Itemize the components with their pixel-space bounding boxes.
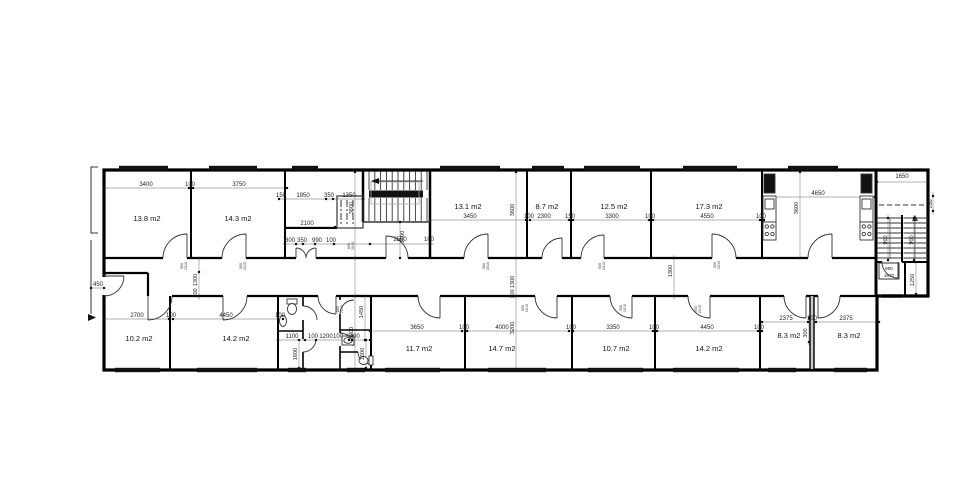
dim-tick xyxy=(198,257,200,259)
room-label: 17.3 m2 xyxy=(695,202,722,211)
dimension-label: 100 xyxy=(807,316,818,322)
dimension-label: 4450 xyxy=(700,325,714,331)
room-label: 14.2 m2 xyxy=(695,344,722,353)
door-size-tag: 2010 xyxy=(717,261,721,269)
dimension-label: 1300 xyxy=(510,276,516,288)
window xyxy=(292,166,318,170)
dimension-chain-lines xyxy=(91,172,933,370)
dimension-label: 1950 xyxy=(296,193,310,199)
dim-tick xyxy=(429,219,431,221)
dimension-label: 100 xyxy=(649,325,660,331)
door-size-tag: 2010 xyxy=(623,304,627,312)
sink-icon xyxy=(862,199,871,209)
room-label: 10.7 m2 xyxy=(602,344,629,353)
dim-tick xyxy=(354,295,356,297)
window xyxy=(119,166,168,170)
dimension-label: 1650 xyxy=(895,174,909,180)
door-size-tag: 2010 xyxy=(525,304,529,312)
room-label: 13.1 m2 xyxy=(454,202,481,211)
dim-tick xyxy=(915,293,917,295)
dim-tick xyxy=(284,226,286,228)
dim-tick xyxy=(334,226,336,228)
dim-tick xyxy=(878,321,880,323)
dim-tick xyxy=(103,318,105,320)
door-size-tag: 2010 xyxy=(243,262,247,270)
floor-plan-page: 13.8 m214.3 m213.1 m28.7 m212.5 m217.3 m… xyxy=(0,0,958,502)
double-partition-fill xyxy=(811,296,814,369)
dimension-label: 100 xyxy=(459,325,470,331)
dim-tick xyxy=(103,187,105,189)
dim-tick xyxy=(365,367,367,369)
dim-tick xyxy=(932,210,934,212)
dim-tick xyxy=(887,259,889,261)
dim-tick xyxy=(761,196,763,198)
dimension-label: 3750 xyxy=(232,182,246,188)
exit-door-width: 800 xyxy=(885,266,893,271)
dim-tick xyxy=(369,330,371,332)
dimension-label: 100 xyxy=(754,325,765,331)
door-size-tag: 2010 xyxy=(698,305,702,313)
dim-tick xyxy=(927,181,929,183)
kitchen-fixtures xyxy=(763,174,873,240)
dimension-label: 100 xyxy=(333,334,344,340)
dim-tick xyxy=(808,341,810,343)
dimension-label: 1250 xyxy=(910,274,916,286)
dimension-label: 3650 xyxy=(410,325,424,331)
door-size-tag: 2010 xyxy=(184,262,188,270)
window xyxy=(834,368,867,372)
dimension-label: 3350 xyxy=(606,325,620,331)
stair-rail xyxy=(369,191,423,198)
dim-tick xyxy=(286,187,288,189)
fridge-icon xyxy=(764,174,775,193)
dim-tick xyxy=(887,217,889,219)
dimension-label: 4000 xyxy=(495,325,509,331)
entrance-arrow xyxy=(88,314,96,321)
dimension-label: 450 xyxy=(93,282,104,288)
window xyxy=(584,166,640,170)
door-size-tag: 2010 xyxy=(351,242,355,250)
window xyxy=(209,166,257,170)
dim-tick xyxy=(364,295,366,297)
window xyxy=(197,368,257,372)
dim-tick xyxy=(399,221,401,223)
toilet-icon xyxy=(369,356,373,365)
dim-tick xyxy=(277,339,279,341)
dimension-label: 3400 xyxy=(139,182,153,188)
dim-tick xyxy=(913,259,915,261)
dimension-label: 2375 xyxy=(779,316,793,322)
room-label: 8.3 m2 xyxy=(778,331,801,340)
dim-tick xyxy=(354,257,356,259)
dimension-ticks xyxy=(90,171,934,371)
dimension-label: 1300 xyxy=(668,265,674,277)
door-size-tag: 2010 xyxy=(602,262,606,270)
room-label: 14.2 m2 xyxy=(222,334,249,343)
dimension-label: 4550 xyxy=(700,214,714,220)
dim-tick xyxy=(369,243,371,245)
dimension-label: 100 xyxy=(308,334,319,340)
dim-tick xyxy=(915,261,917,263)
room-label: 13.8 m2 xyxy=(133,214,160,223)
dimension-label: 100 xyxy=(645,214,656,220)
room-label: 12.5 m2 xyxy=(600,202,627,211)
dim-tick xyxy=(429,243,431,245)
dimension-label: 1300 xyxy=(193,274,199,286)
stove-icon xyxy=(763,222,776,240)
sink-icon xyxy=(765,199,774,209)
window xyxy=(588,368,643,372)
window xyxy=(115,368,160,372)
dimension-label: 100 xyxy=(424,237,435,243)
dimension-label: 100 xyxy=(275,313,286,319)
dimension-label: 3450 xyxy=(463,214,477,220)
window xyxy=(768,368,796,372)
dimension-label: 100 xyxy=(510,289,516,298)
dimension-label: 100 xyxy=(185,182,196,188)
door-size-tag: 2010 xyxy=(486,262,490,270)
dimension-label: 1200 xyxy=(319,334,333,340)
dimension-label: 900 xyxy=(909,235,915,244)
dimension-label: 350 xyxy=(297,238,308,244)
window xyxy=(385,368,440,372)
dimension-label: 350 xyxy=(324,193,335,199)
dimension-label: 100 xyxy=(524,214,535,220)
dim-tick xyxy=(515,369,517,371)
dimension-label: 100 xyxy=(193,288,199,297)
dimension-label: 4650 xyxy=(811,191,825,197)
dimension-label: 3600 xyxy=(510,204,516,216)
dim-tick xyxy=(304,339,306,341)
stove-icon xyxy=(860,222,873,240)
dimension-label: 1500 xyxy=(400,231,406,243)
dimension-label: 3600 xyxy=(794,202,800,214)
dim-tick xyxy=(399,257,401,259)
dimension-label: 3600 xyxy=(349,202,355,214)
window xyxy=(683,166,737,170)
dim-tick xyxy=(365,339,367,341)
window xyxy=(532,166,564,170)
dimension-label: 800 xyxy=(285,238,296,244)
dimension-label: 150 xyxy=(565,214,576,220)
dimension-label: 990 xyxy=(312,238,323,244)
dim-tick xyxy=(90,287,92,289)
dim-tick xyxy=(673,257,675,259)
dim-tick xyxy=(799,257,801,259)
dimension-label: 300 xyxy=(803,328,809,337)
dim-tick xyxy=(103,287,105,289)
dimension-label: 4450 xyxy=(219,313,233,319)
floor-plan-canvas: 13.8 m214.3 m213.1 m28.7 m212.5 m217.3 m… xyxy=(0,0,958,502)
toilet-icon xyxy=(288,304,297,315)
dim-tick xyxy=(761,321,763,323)
dim-tick xyxy=(913,217,915,219)
door-size-tags: 9002010900201080020109002010900201090020… xyxy=(180,242,721,313)
dimension-label: 150 xyxy=(928,199,934,208)
dim-tick xyxy=(298,367,300,369)
dim-tick xyxy=(515,257,517,259)
dimension-label: 3300 xyxy=(605,214,619,220)
dim-tick xyxy=(198,271,200,273)
dim-tick xyxy=(874,196,876,198)
dim-tick xyxy=(799,171,801,173)
room-label: 8.7 m2 xyxy=(536,202,559,211)
dimension-label: 100 xyxy=(166,313,177,319)
exit-door-height: 1970 xyxy=(884,273,895,278)
dimension-label: 2300 xyxy=(537,214,551,220)
window xyxy=(788,166,838,170)
dim-tick xyxy=(354,171,356,173)
dimension-label: 3200 xyxy=(349,327,355,339)
room-label: 11.7 m2 xyxy=(406,344,433,353)
dimension-label: 100 xyxy=(756,214,767,220)
room-label: 14.7 m2 xyxy=(488,344,515,353)
dimension-label: 100 xyxy=(326,238,337,244)
window xyxy=(673,368,739,372)
window xyxy=(440,166,500,170)
fridge-icon xyxy=(861,174,872,193)
room-label: 10.2 m2 xyxy=(125,334,152,343)
dimension-label: 3200 xyxy=(510,322,516,334)
dim-tick xyxy=(362,198,364,200)
dim-tick xyxy=(876,181,878,183)
dimension-label: 1600 xyxy=(293,348,299,360)
room-label: 14.3 m2 xyxy=(224,214,251,223)
dim-tick xyxy=(932,195,934,197)
dimension-label: 2700 xyxy=(130,313,144,319)
dimension-label: 1100 xyxy=(286,334,300,340)
site-marks xyxy=(88,167,98,321)
room-label: 8.3 m2 xyxy=(838,331,861,340)
dimension-label: 2375 xyxy=(839,316,853,322)
dimension-label: 900 xyxy=(883,235,889,244)
dimension-label: 1450 xyxy=(359,306,365,318)
dimension-label: 2100 xyxy=(300,221,314,227)
dimension-label: 100 xyxy=(566,325,577,331)
door-size-tag: 2010 xyxy=(340,305,344,313)
dim-tick xyxy=(369,339,371,341)
room-labels: 13.8 m214.3 m213.1 m28.7 m212.5 m217.3 m… xyxy=(125,202,860,353)
dimension-label: 150 xyxy=(276,193,287,199)
dimension-label: 1600 xyxy=(360,348,366,360)
dimension-label: 1350 xyxy=(342,193,356,199)
dim-tick xyxy=(354,369,356,371)
window xyxy=(288,368,306,372)
dim-tick xyxy=(515,171,517,173)
dim-tick xyxy=(673,295,675,297)
